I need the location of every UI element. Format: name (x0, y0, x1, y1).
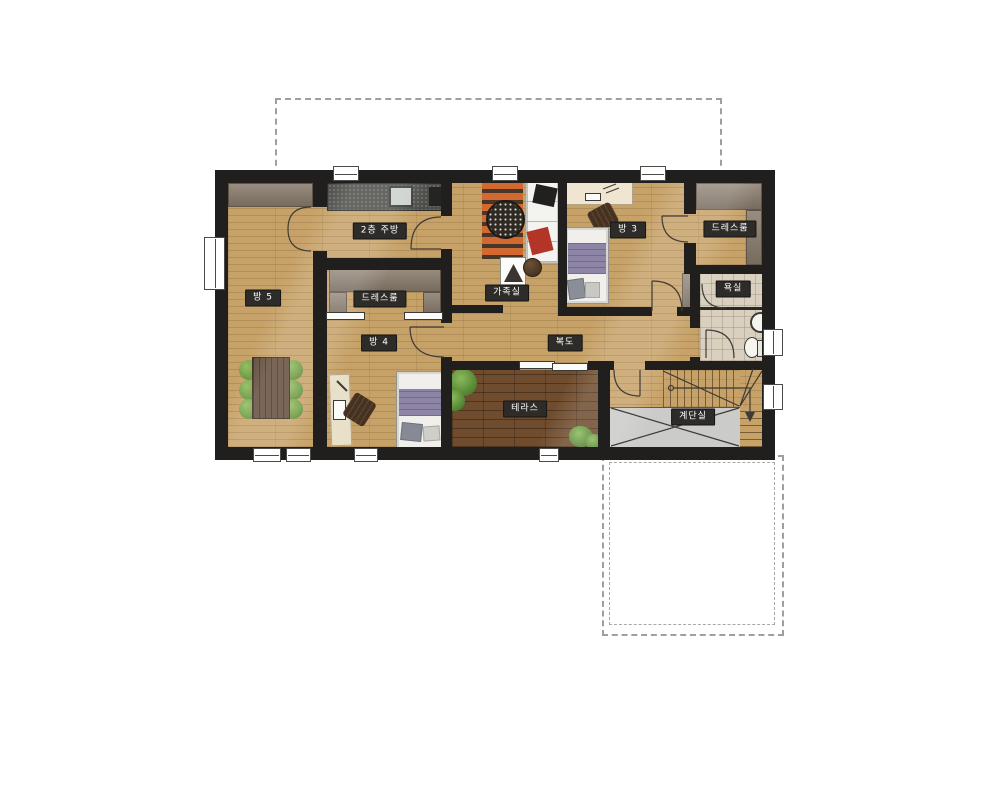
wall-exterior-left (215, 170, 228, 460)
window (539, 448, 559, 462)
room-label-room3: 방 3 (610, 222, 646, 239)
room4-blanket (399, 389, 441, 416)
wall-exterior-right (762, 170, 775, 460)
wall-segment (690, 274, 700, 328)
closet-room5 (228, 183, 313, 207)
room-label-dressroom-left: 드레스룸 (353, 291, 406, 308)
closet-dressroom-right-side (746, 210, 762, 265)
room-label-dressroom-right: 드레스룸 (703, 221, 756, 238)
sliding-door-dressroom (404, 312, 443, 320)
room-label-family-room: 가족실 (485, 285, 529, 302)
room-label-kitchen: 2층 주방 (353, 223, 407, 240)
stair-treads-right (740, 407, 762, 447)
room4-pillow-2 (422, 425, 440, 441)
roof-overhang-outline (275, 98, 722, 176)
wall-segment (313, 183, 327, 207)
wall-segment (598, 361, 610, 447)
wall-segment (315, 258, 443, 270)
lower-floor-outline-inner (609, 462, 775, 625)
family-side-stool (523, 258, 542, 277)
window (492, 166, 518, 181)
sliding-door-terrace (519, 361, 555, 369)
family-round-table (486, 200, 525, 239)
window (286, 448, 311, 462)
wall-segment (441, 357, 452, 447)
sliding-door-terrace (552, 363, 588, 371)
room-label-corridor: 복도 (548, 335, 583, 352)
room-label-stairwell: 계단실 (671, 409, 715, 426)
window (640, 166, 666, 181)
room3-desk-notebook (585, 193, 601, 201)
room3-pillow (567, 278, 587, 300)
wall-segment (441, 305, 503, 313)
wall-segment (645, 361, 762, 370)
window (333, 166, 359, 181)
window (763, 329, 783, 356)
window (354, 448, 378, 462)
stair-treads-upper (663, 370, 740, 407)
wall-segment (684, 183, 696, 214)
wall-segment (558, 307, 652, 316)
closet-dressroom-right-top (696, 183, 762, 210)
floorplan-canvas: 방 5 2층 주방 드레스룸 가족실 방 3 드레스룸 욕실 방 4 복도 테라… (0, 0, 1000, 790)
family-art-frame (500, 257, 526, 288)
room-label-terrace: 테라스 (503, 401, 547, 418)
dining-table (252, 357, 290, 419)
kitchen-sink (389, 186, 413, 207)
wall-segment (558, 183, 567, 312)
room3-blanket (568, 243, 606, 274)
room-label-bathroom: 욕실 (716, 281, 751, 298)
room4-pillow (400, 422, 423, 442)
art-mountain (504, 264, 523, 282)
window (204, 237, 225, 290)
window (763, 384, 783, 410)
room-label-room5: 방 5 (245, 290, 281, 307)
wall-segment (441, 183, 452, 216)
kitchen-counter (327, 183, 443, 211)
closet-dressroom-left-top (329, 268, 441, 292)
room-label-room4: 방 4 (361, 335, 397, 352)
wall-segment (313, 251, 327, 447)
window (253, 448, 281, 462)
sliding-door-dressroom (326, 312, 365, 320)
room3-pillow-2 (585, 282, 600, 298)
wall-segment (443, 361, 520, 370)
bathroom-divider-wall (700, 307, 762, 310)
wall-segment (684, 265, 762, 274)
